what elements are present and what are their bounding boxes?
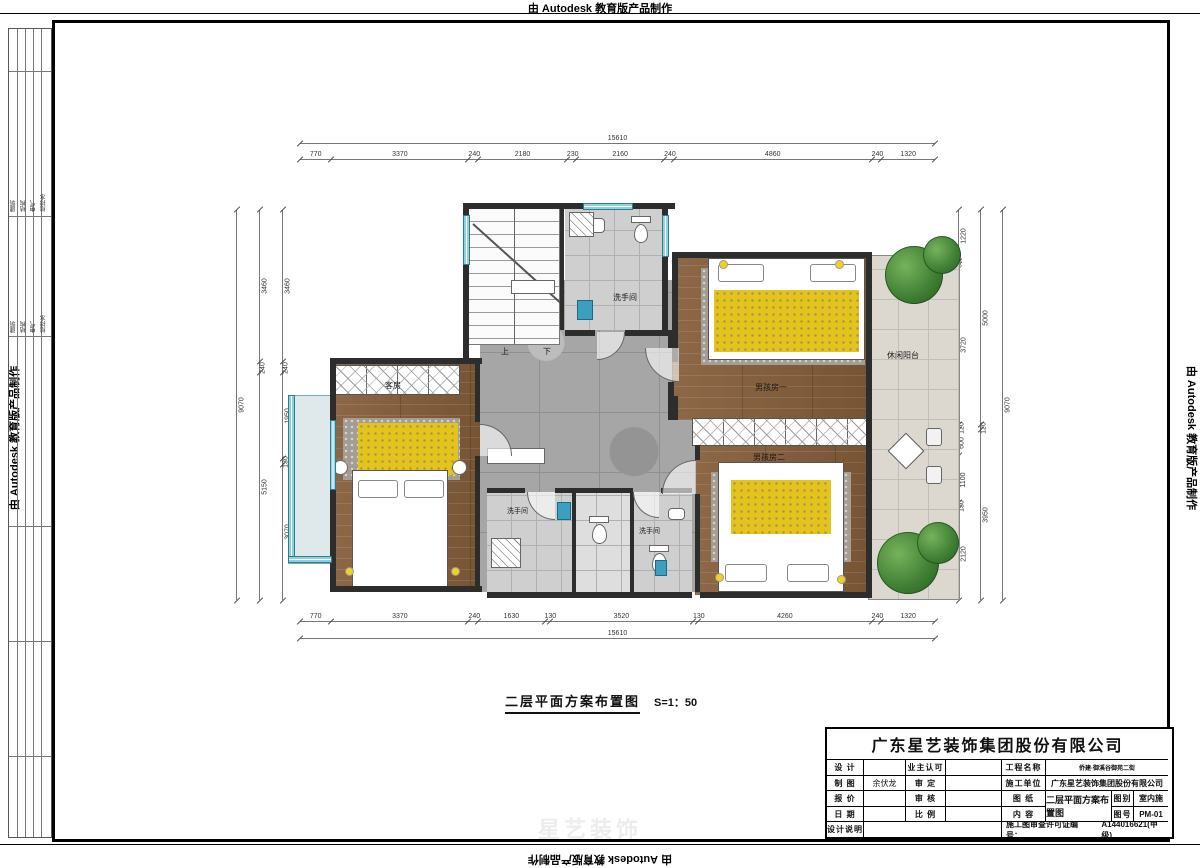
floor-plan: 15610 7703370240218023021602404860240132… [225, 130, 1015, 660]
wall [475, 456, 480, 592]
light-icon [719, 260, 728, 269]
caption-scale: S=1：50 [654, 694, 697, 710]
toilet-top-tank [631, 216, 651, 223]
door-bath-br [655, 560, 667, 576]
permit-number: A144016621(甲级) [1101, 821, 1168, 837]
permit-label: 施工图审查许可证编号： [1006, 821, 1093, 837]
balcony-chair-1 [926, 428, 942, 446]
watermark-bottom: 由 Autodesk 教育版产品制作 [528, 852, 672, 868]
toilet-br-tank [649, 545, 669, 552]
wall [866, 252, 872, 598]
wall [695, 494, 700, 592]
light-icon [345, 567, 354, 576]
dim-value: 3520 [550, 610, 693, 621]
dim-value: 240 [872, 148, 882, 159]
boy2-blanket [731, 480, 831, 534]
dim-value: 4860 [674, 148, 872, 159]
guest-pillow-2 [404, 480, 444, 498]
dim-value: 5150 [260, 373, 271, 600]
watermark-right: 由 Autodesk 教育版产品制作 [1184, 348, 1200, 528]
wall [672, 252, 872, 258]
wall [625, 330, 668, 336]
signature-column-label: 结构 [20, 124, 28, 212]
dim-value: 1320 [881, 148, 935, 159]
sink-br-icon [668, 508, 685, 520]
dim-value: 9070 [237, 210, 248, 600]
guest-nightstand-right [452, 460, 467, 475]
label-stair-up: 上 [501, 346, 509, 357]
guest-runner [358, 423, 458, 475]
wall [475, 362, 480, 422]
boy2-pillow-1 [725, 564, 767, 582]
dim-value: 230 [567, 148, 576, 159]
tb-label: 日 期 [827, 806, 863, 821]
dim-value: 3720 [959, 265, 970, 425]
signature-column-label: 结构 [20, 269, 28, 333]
signature-column-label: 给排水 [40, 269, 48, 333]
dim-left-total: 9070 [236, 210, 248, 600]
tb-label: 设 计 [827, 759, 863, 775]
label-boy-room-1: 男孩房一 [755, 382, 787, 393]
tb-label: 审 定 [905, 775, 945, 790]
light-icon [837, 575, 846, 584]
dim-value: 1320 [881, 610, 935, 621]
dim-value: 15610 [300, 132, 935, 143]
toilet-mid-tank [589, 516, 609, 523]
door-bath-top [577, 300, 593, 320]
tb-value [945, 790, 1001, 806]
boys-wardrobe [692, 418, 870, 446]
dim-value: 770 [300, 148, 331, 159]
toilet-mid-icon [592, 524, 607, 544]
dim-value: 240 [468, 148, 478, 159]
company-name: 广东星艺装饰集团股份有限公司 [827, 729, 1168, 759]
tb-label: 图别 [1111, 790, 1133, 806]
shower-top-icon [569, 212, 594, 237]
wall [565, 330, 595, 336]
dim-value: 3460 [260, 210, 271, 362]
tb-value [945, 775, 1001, 790]
shower-bottom-icon [491, 538, 521, 568]
signature-column-label: 电气 [30, 124, 38, 212]
tb-label: 施工单位 [1001, 775, 1045, 790]
light-icon [715, 573, 724, 582]
window-guest [330, 420, 336, 490]
tb-value [863, 806, 905, 821]
dim-top-total: 15610 [300, 132, 935, 144]
dim-value: 3370 [331, 148, 468, 159]
dim-value: 3370 [331, 610, 468, 621]
dim-bottom-segments: 77033702401630130352013042602401320 [300, 610, 935, 622]
tb-label: 业主认可 [905, 759, 945, 775]
signature-column-label: 建筑 [10, 124, 18, 212]
ghost-logo: 星艺装饰 [538, 812, 642, 844]
label-stair-down: 下 [543, 346, 551, 357]
light-icon [835, 260, 844, 269]
drafter-name: 余伏龙 [863, 775, 905, 790]
window-stair [463, 215, 470, 265]
tree-bottom-2 [917, 522, 959, 564]
label-guest-room: 客房 [385, 380, 401, 391]
project-name: 侨建·御溪谷御苑二街 [1045, 759, 1168, 775]
dim-value: 240 [664, 148, 674, 159]
dim-bottom-total: 15610 [300, 627, 935, 639]
signature-group-1: 建筑结构电气给排水 [10, 124, 48, 212]
stairwell [468, 208, 560, 345]
hall-cabinet [511, 280, 555, 294]
window-bath-top [662, 215, 669, 257]
tb-label: 设计说明 [827, 821, 863, 837]
caption-title: 二层平面方案布置图 [505, 691, 640, 714]
dim-value: 240 [468, 610, 478, 621]
dim-value: 3950 [981, 430, 992, 600]
dim-value: 2180 [478, 148, 567, 159]
tb-label: 工程名称 [1001, 759, 1045, 775]
boy2-pillow-2 [787, 564, 829, 582]
toilet-top-icon [634, 224, 648, 243]
light-icon [451, 567, 460, 576]
signature-strip: 建筑结构电气给排水 建筑结构电气给排水 [8, 28, 52, 838]
label-bath-br: 洗手间 [639, 526, 660, 536]
dim-value: 9070 [1003, 210, 1014, 600]
label-boy-room-2: 男孩房二 [753, 452, 785, 463]
tb-label: 比 例 [905, 806, 945, 821]
dim-value: 5000 [981, 210, 992, 425]
balcony-chair-2 [926, 466, 942, 484]
signature-column-label: 电气 [30, 269, 38, 333]
sheet-bottom-rule [0, 844, 1200, 845]
dim-left-mid: 34602405150 [259, 210, 271, 600]
tb-blank [863, 821, 1001, 837]
dim-right-mid: 50001203950 [980, 210, 992, 600]
dim-value: 770 [300, 610, 331, 621]
tb-value [945, 759, 1001, 775]
wall [700, 592, 872, 598]
tb-label: 制 图 [827, 775, 863, 790]
dim-value: 1630 [478, 610, 544, 621]
signature-group-2: 建筑结构电气给排水 [10, 269, 48, 333]
sheet-top-rule [0, 13, 1200, 14]
sheet-number: PM-01 [1133, 806, 1168, 821]
signature-column-label: 建筑 [10, 269, 18, 333]
boy1-blanket [714, 290, 859, 352]
wall [630, 492, 634, 595]
wall [330, 586, 482, 592]
title-block: 广东星艺装饰集团股份有限公司 设 计 业主认可 工程名称 侨建·御溪谷御苑二街 … [825, 727, 1174, 839]
label-bath-top: 洗手间 [613, 292, 637, 303]
boy1-pillow-2 [810, 264, 856, 282]
window-guest-balcony [288, 395, 295, 562]
wall [463, 203, 675, 209]
tb-value [863, 790, 905, 806]
dim-value: 2160 [576, 148, 664, 159]
dim-value: 2120 [959, 509, 970, 600]
contractor-name: 广东星艺装饰集团股份有限公司 [1045, 775, 1168, 790]
dim-value: 15610 [300, 627, 935, 638]
tb-label: 图 纸 [1001, 790, 1045, 806]
wall [487, 488, 525, 493]
wall [555, 488, 633, 493]
guest-pillow-1 [358, 480, 398, 498]
permit-cell: 施工图审查许可证编号： A144016621(甲级) [1001, 821, 1168, 837]
window-bath-top-2 [583, 203, 633, 210]
sheet-content-name: 二层平面方案布置图 [1045, 790, 1111, 821]
dim-right-total: 9070 [1002, 210, 1014, 600]
dim-value: 1100 [959, 456, 970, 503]
tb-label: 内 容 [1001, 806, 1045, 821]
wall [330, 358, 482, 364]
wall [668, 382, 674, 420]
label-bath-bl: 洗手间 [507, 506, 528, 516]
tree-top-2 [923, 236, 961, 274]
dim-value: 3460 [283, 210, 294, 362]
tb-value [945, 806, 1001, 821]
label-leisure-balcony: 休闲阳台 [887, 350, 919, 361]
sheet-category: 室内施 [1133, 790, 1168, 806]
tb-label: 图号 [1111, 806, 1133, 821]
tb-label: 报 价 [827, 790, 863, 806]
wall [695, 445, 700, 460]
wall [572, 492, 576, 595]
signature-column-label: 给排水 [40, 124, 48, 212]
drawing-caption: 二层平面方案布置图 S=1：50 [505, 691, 697, 714]
wall [487, 592, 692, 598]
wall [560, 208, 564, 330]
dim-value: 240 [872, 610, 882, 621]
dim-top-segments: 77033702402180230216024048602401320 [300, 148, 935, 160]
wall [668, 330, 674, 348]
dim-value: 4260 [698, 610, 871, 621]
window-guest-balcony-2 [288, 556, 332, 563]
tb-label: 审 核 [905, 790, 945, 806]
door-bath-bl [557, 502, 571, 520]
tb-value [863, 759, 905, 775]
